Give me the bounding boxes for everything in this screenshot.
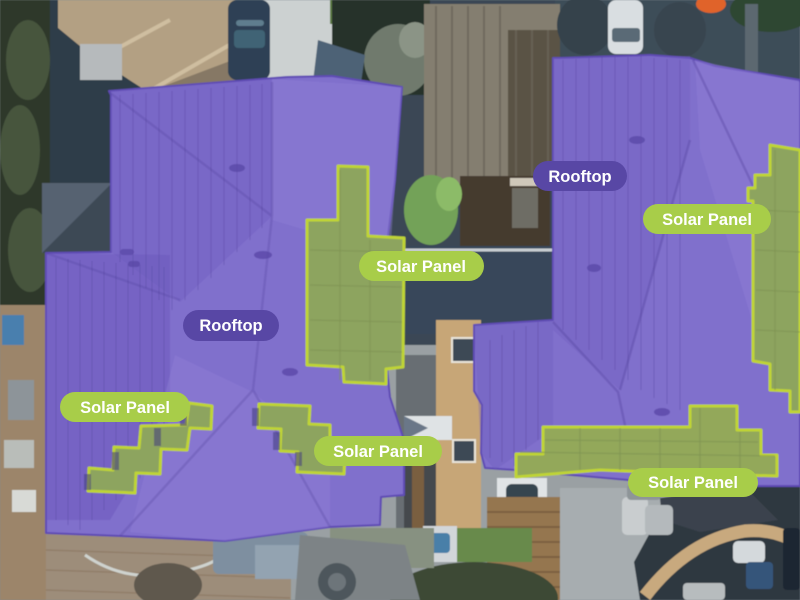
svg-text:Solar Panel: Solar Panel [80,399,170,417]
svg-text:Rooftop: Rooftop [199,317,262,335]
svg-text:Solar Panel: Solar Panel [662,211,752,229]
svg-text:Solar Panel: Solar Panel [648,474,738,492]
svg-text:Solar Panel: Solar Panel [376,258,466,276]
svg-text:Solar Panel: Solar Panel [333,443,423,461]
svg-text:Rooftop: Rooftop [548,168,611,186]
